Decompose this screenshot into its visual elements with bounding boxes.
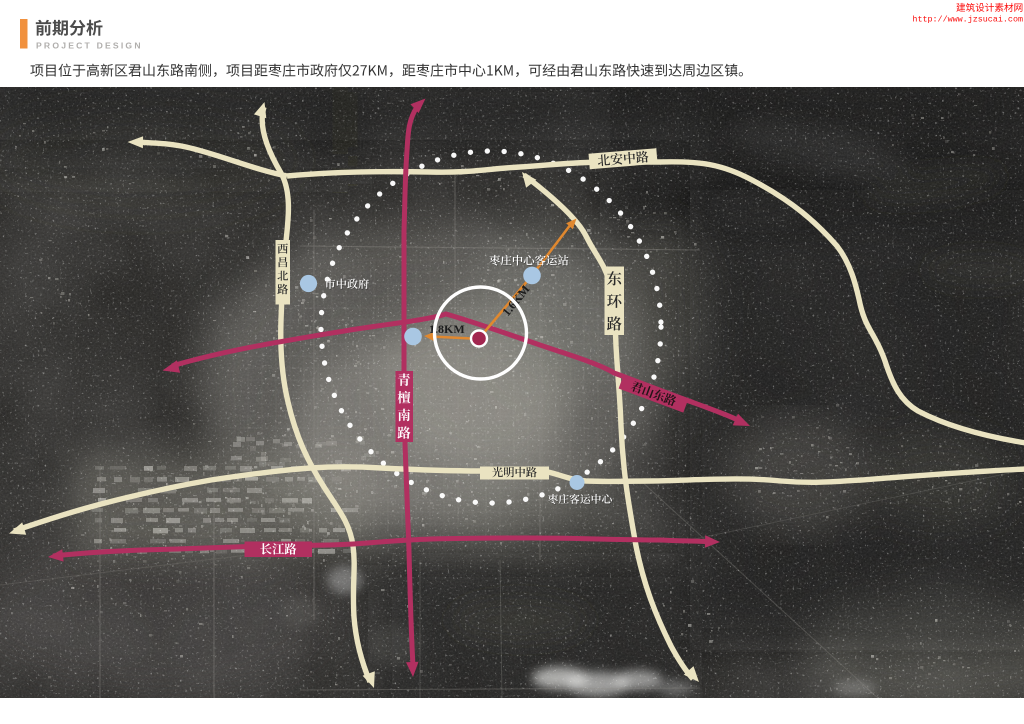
svg-text:http://www.jzsucai.com: http://www.jzsucai.com xyxy=(912,15,1023,25)
svg-text:PROJECT DESIGN: PROJECT DESIGN xyxy=(36,41,143,51)
